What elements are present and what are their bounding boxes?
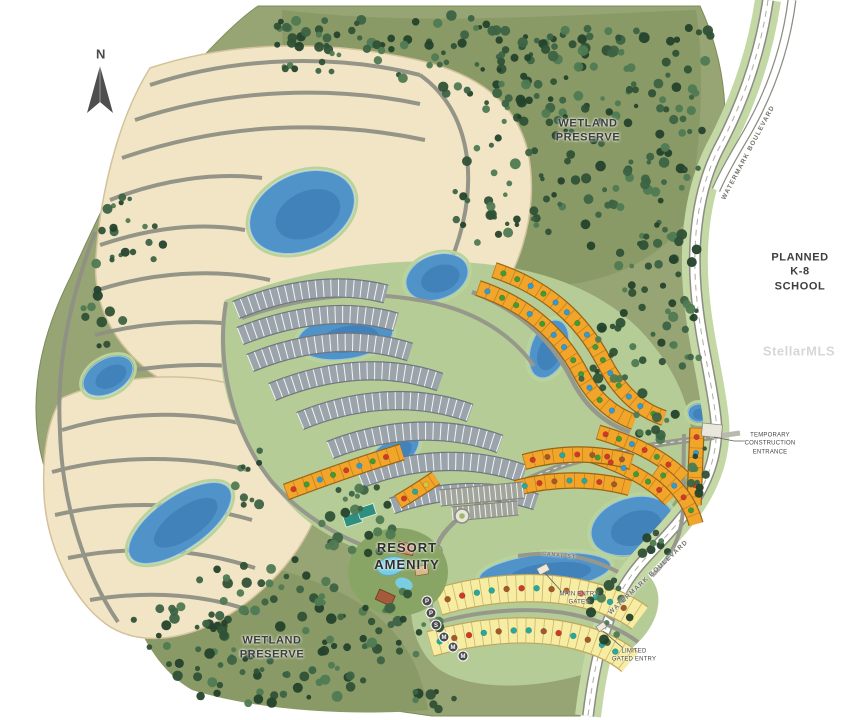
tree [672, 82, 682, 92]
tree [620, 309, 628, 317]
lot-status-dot [611, 482, 617, 488]
tree [502, 119, 507, 124]
lot-status-dot [423, 482, 429, 488]
lot-status-dot [370, 459, 376, 465]
tree [473, 25, 479, 31]
lot-status-dot [459, 593, 465, 599]
tree [336, 487, 342, 493]
tree [126, 218, 131, 223]
lot-status-dot [317, 477, 323, 483]
tree [319, 59, 326, 66]
lot-status-dot [604, 454, 610, 460]
tree [571, 175, 580, 184]
lot-status-dot [609, 408, 615, 414]
tree [612, 185, 619, 192]
tree [329, 51, 334, 56]
tree [610, 374, 619, 383]
tree [444, 60, 450, 66]
lot-status-dot [638, 403, 644, 409]
tree [378, 47, 385, 54]
lot-status-dot [451, 635, 457, 641]
tree [548, 51, 559, 62]
tree [274, 42, 280, 48]
tree [328, 662, 335, 669]
lot-status-dot [481, 630, 487, 636]
tree [675, 105, 683, 113]
tree [627, 63, 636, 72]
tree [460, 30, 469, 39]
tree [98, 227, 106, 235]
tree [602, 187, 607, 192]
tree [147, 644, 153, 650]
tree [321, 17, 328, 24]
tree [480, 67, 485, 72]
tree [195, 625, 200, 630]
tree [314, 42, 324, 52]
stellar-mls-watermark: StellarMLS [763, 344, 835, 361]
tree [664, 418, 669, 423]
lot-status-dot [587, 385, 593, 391]
tree [326, 613, 337, 624]
lot-status-dot [619, 457, 625, 463]
tree [468, 15, 475, 22]
tree [462, 156, 472, 166]
tree [613, 631, 620, 638]
lot-status-dot [582, 478, 588, 484]
tree [360, 635, 367, 642]
tree [437, 62, 443, 68]
tree [616, 249, 624, 257]
tree [331, 643, 337, 649]
tree [662, 227, 668, 233]
tree [662, 58, 671, 67]
tree [679, 185, 685, 191]
tree [679, 362, 686, 369]
lot-status-dot [383, 454, 389, 460]
lot-status-dot [600, 357, 606, 363]
tree [156, 633, 162, 639]
tree [384, 603, 394, 613]
lot-status-dot [621, 465, 627, 471]
tree [674, 237, 683, 246]
tree [521, 79, 531, 89]
tree [690, 314, 698, 322]
tree [254, 694, 264, 704]
tree [306, 695, 311, 700]
lot-status-dot [561, 344, 567, 350]
tree [658, 538, 664, 544]
tree [87, 303, 96, 312]
lot-status-dot [552, 479, 558, 485]
tree [118, 193, 126, 201]
wetland-preserve-bottom-label: WETLAND PRESERVE [240, 634, 305, 663]
tree [240, 669, 246, 675]
tree [564, 75, 569, 80]
lot-status-dot [466, 632, 472, 638]
tree [629, 264, 634, 269]
tree [654, 260, 663, 269]
lot-status-dot [539, 321, 545, 327]
lot-status-dot [585, 637, 591, 643]
limited-gated-entry-label: LIMITED GATED ENTRY [612, 648, 656, 665]
tree [671, 410, 680, 419]
tree [433, 19, 442, 28]
tree [665, 73, 670, 78]
tree [604, 27, 612, 35]
tree [659, 358, 666, 365]
tree [354, 21, 360, 27]
tree [348, 546, 357, 555]
tree [604, 202, 611, 209]
tree [329, 69, 335, 75]
tree [688, 463, 698, 473]
tree [237, 589, 245, 597]
tree [578, 45, 589, 56]
lot-status-dot [489, 588, 495, 594]
tree [412, 697, 418, 703]
tree [497, 57, 505, 65]
tree [239, 605, 249, 615]
tree [574, 91, 584, 101]
lot-status-dot [681, 495, 687, 501]
tree [413, 651, 420, 658]
tree [474, 239, 481, 246]
tree [680, 116, 687, 123]
site-plan-map: PPSMMM [0, 0, 858, 720]
tree [703, 446, 707, 450]
tree [661, 179, 667, 185]
tree [574, 62, 584, 72]
tree [103, 341, 110, 348]
tree [163, 642, 171, 650]
tree [426, 62, 433, 69]
tree [362, 605, 368, 611]
lot-status-dot [564, 310, 570, 316]
resort-amenity-label: RESORT AMENITY [374, 540, 440, 574]
tree [541, 45, 550, 54]
lot-status-dot [527, 311, 533, 317]
tree [400, 41, 409, 50]
tree [633, 28, 640, 35]
tree [364, 531, 373, 540]
lot-status-dot [551, 332, 557, 338]
tree [367, 638, 377, 648]
tree [223, 574, 230, 581]
tree [516, 95, 526, 105]
tree [373, 527, 382, 536]
tree [295, 42, 304, 51]
tree [396, 640, 402, 646]
lot-status-dot [645, 479, 651, 485]
tree [698, 127, 706, 135]
lot-status-dot [513, 302, 519, 308]
tree [687, 479, 695, 487]
lot-status-dot [642, 447, 648, 453]
tree [421, 622, 426, 627]
tree [656, 104, 664, 112]
tree [155, 604, 164, 613]
tree [692, 245, 702, 255]
tree [506, 181, 512, 187]
tree [383, 501, 391, 509]
tree [217, 682, 223, 688]
tree [334, 31, 341, 38]
tree [296, 586, 304, 594]
tree [608, 352, 614, 358]
tree [284, 574, 290, 580]
tree [109, 224, 117, 232]
tree [498, 81, 505, 88]
tree [246, 467, 251, 472]
tree [696, 484, 704, 492]
tree [525, 97, 533, 105]
tree [674, 37, 680, 43]
wetland-preserve-top-label: WETLAND PRESERVE [556, 117, 621, 146]
tree [453, 216, 460, 223]
tree [172, 671, 182, 681]
lot-status-dot [401, 496, 407, 502]
lot-status-dot [616, 383, 622, 389]
tree [682, 167, 687, 172]
tree [314, 598, 323, 607]
tree [659, 96, 666, 103]
site-plan-page: PPSMMM N WETLAND PRESERVE WETLAND PRESER… [0, 0, 858, 720]
tree [668, 312, 678, 322]
tree [503, 228, 513, 238]
tree [662, 321, 671, 330]
tree [534, 93, 540, 99]
tree [362, 644, 367, 649]
lot-status-dot [603, 432, 609, 438]
tree [335, 666, 340, 671]
tree [692, 90, 699, 97]
tree [511, 54, 519, 62]
tree [517, 114, 522, 119]
tree [651, 425, 660, 434]
tree [534, 80, 543, 89]
lot-status-dot [541, 628, 547, 634]
tree [492, 88, 502, 98]
tree [400, 616, 407, 623]
tree [631, 81, 637, 87]
tree [566, 150, 575, 159]
tree [231, 481, 240, 490]
tree [669, 342, 675, 348]
tree [639, 32, 650, 43]
tree [207, 677, 217, 687]
tree [639, 356, 647, 364]
roundabout-island [459, 513, 465, 519]
tree [577, 34, 587, 44]
tree [142, 224, 148, 230]
tree [593, 373, 603, 383]
tree [693, 454, 699, 460]
tree [503, 192, 508, 197]
tree [607, 48, 616, 57]
tree [668, 299, 676, 307]
tree [291, 16, 301, 26]
tree [324, 43, 330, 49]
planned-school-label: PLANNED K-8 SCHOOL [771, 251, 829, 294]
tree [315, 68, 321, 74]
tree [683, 300, 691, 308]
tree [653, 530, 660, 537]
tree [551, 43, 558, 50]
tree [348, 27, 355, 34]
tree [655, 130, 664, 139]
tree [616, 203, 624, 211]
tree [266, 579, 274, 587]
tree [641, 286, 648, 293]
lot-status-dot [496, 628, 502, 634]
lot-status-dot [291, 486, 297, 492]
construction-pad [701, 423, 722, 438]
tree [657, 339, 665, 347]
tree [497, 67, 502, 72]
tree [105, 306, 115, 316]
tree [486, 202, 495, 211]
tree [231, 647, 236, 652]
tree [647, 160, 652, 165]
tree [660, 283, 666, 289]
tree [166, 661, 172, 667]
tree [97, 317, 108, 328]
tree [278, 584, 284, 590]
lot-status-dot [304, 482, 310, 488]
lot-status-dot [545, 454, 551, 460]
lot-status-dot [633, 471, 639, 477]
tree [484, 100, 489, 105]
tree [464, 87, 471, 94]
tree [540, 177, 545, 182]
tree [195, 666, 200, 671]
tree [403, 590, 412, 599]
tree [241, 502, 247, 508]
temporary-construction-entrance-label: TEMPORARY CONSTRUCTION ENTRANCE [745, 431, 796, 456]
tree [424, 41, 433, 50]
tree [175, 659, 184, 668]
tree [266, 564, 276, 574]
tree [302, 571, 310, 579]
tree [505, 94, 513, 102]
tree [434, 705, 442, 713]
tree [586, 33, 594, 41]
tree [658, 198, 664, 204]
lot-status-dot [522, 483, 528, 489]
tree [227, 655, 237, 665]
tree [491, 169, 498, 176]
lot-status-dot [474, 590, 480, 596]
tree [257, 448, 263, 454]
tree [586, 607, 596, 617]
tree [551, 192, 557, 198]
tree [81, 305, 87, 311]
lot-type-letter: S [434, 623, 438, 629]
tree [628, 160, 633, 165]
lot-status-dot [534, 585, 540, 591]
tree [500, 26, 510, 36]
tree [628, 281, 636, 289]
tree [301, 27, 311, 37]
tree [633, 412, 640, 419]
lot-status-dot [607, 599, 613, 605]
tree [396, 648, 403, 655]
tree [242, 578, 252, 588]
tree [260, 667, 265, 672]
tree [398, 73, 408, 83]
tree [547, 33, 554, 40]
tree [360, 677, 366, 683]
tree [637, 429, 644, 436]
tree [354, 484, 363, 493]
tree [145, 239, 152, 246]
lot-status-dot [501, 271, 507, 277]
tree [250, 498, 255, 503]
tree [590, 63, 598, 71]
tree [626, 614, 634, 622]
tree [652, 412, 662, 422]
lot-status-dot [595, 455, 601, 461]
lot-status-dot [570, 633, 576, 639]
tree [505, 222, 509, 226]
tree [561, 26, 570, 35]
tree [687, 354, 694, 361]
tree [615, 34, 622, 41]
tree [475, 62, 480, 67]
tree [584, 25, 592, 33]
tree [610, 324, 616, 330]
tree [489, 143, 494, 148]
tree [288, 33, 298, 43]
tree [604, 580, 615, 591]
tree [524, 54, 531, 61]
tree [502, 46, 509, 53]
tree [357, 35, 362, 40]
tree [93, 291, 103, 301]
tree [346, 671, 355, 680]
tree [441, 50, 446, 55]
tree [520, 73, 527, 80]
tree [293, 683, 303, 693]
tree [221, 620, 227, 626]
tree [346, 682, 356, 692]
tree [669, 255, 678, 264]
lot-status-dot [330, 472, 336, 478]
tree [569, 40, 577, 48]
lot-type-letter: M [442, 635, 447, 641]
tree [644, 178, 651, 185]
tree [541, 109, 550, 118]
tree [297, 612, 307, 622]
lot-status-dot [654, 454, 660, 460]
lot-type-letter: M [461, 654, 466, 660]
tree [195, 646, 201, 652]
lot-status-dot [590, 452, 596, 458]
tree [545, 229, 552, 236]
tree [687, 129, 692, 134]
tree [650, 540, 657, 547]
tree [638, 548, 648, 558]
tree [426, 689, 436, 699]
tree [332, 691, 343, 702]
tree [292, 556, 299, 563]
tree [595, 212, 601, 218]
tree [131, 617, 137, 623]
tree [700, 56, 710, 66]
tree [619, 49, 624, 54]
tree [451, 696, 457, 702]
tree [595, 336, 602, 343]
